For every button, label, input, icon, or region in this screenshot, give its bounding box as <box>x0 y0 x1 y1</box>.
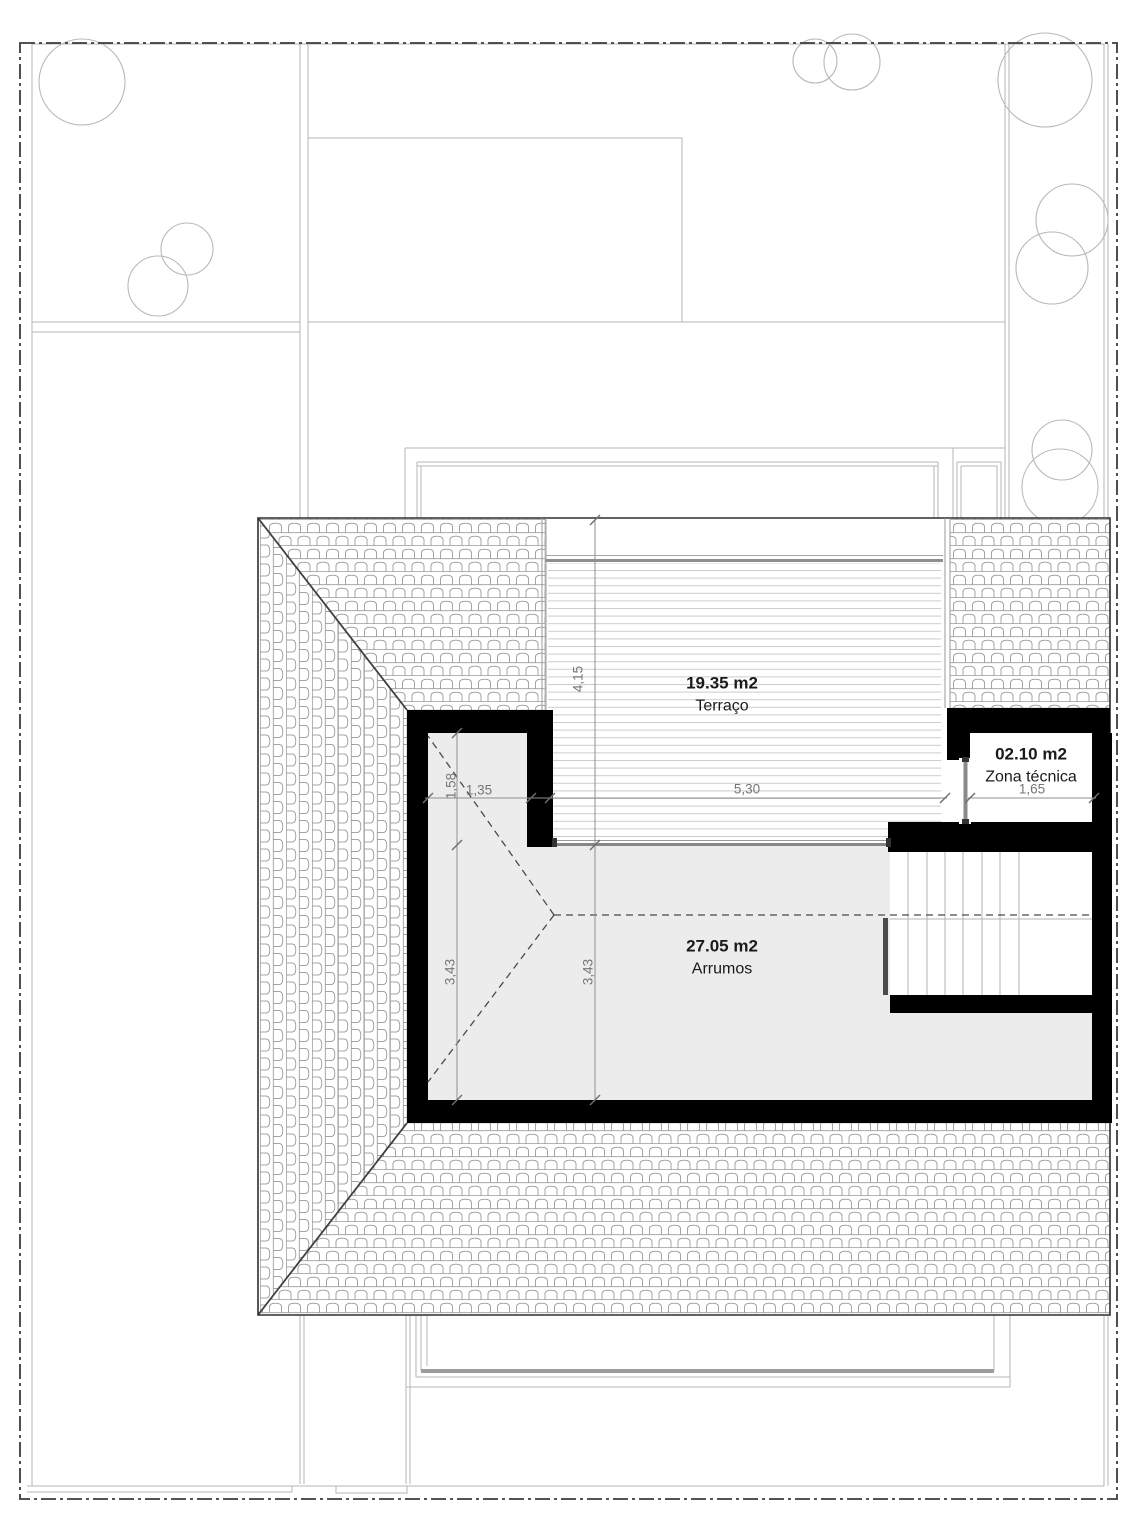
stairs <box>883 852 1092 995</box>
tree <box>1016 232 1088 304</box>
dim-label-terrace-width: 5,30 <box>734 782 760 797</box>
tree <box>128 256 188 316</box>
floor-plan-drawing <box>0 0 1125 1526</box>
room-label-arrumos: 27.05 m2 Arrumos <box>686 936 758 981</box>
floor-plan-canvas: 19.35 m2 Terraço 02.10 m2 Zona técnica 2… <box>0 0 1125 1526</box>
room-area: 19.35 m2 <box>686 673 758 696</box>
room-label-terraco: 19.35 m2 Terraço <box>686 673 758 718</box>
room-area: 27.05 m2 <box>686 936 758 959</box>
tree <box>1032 420 1092 480</box>
roof-hatch-bottom <box>258 1123 1110 1315</box>
technical-zone-door <box>959 757 971 824</box>
dim-label-storage-height-mid: 3,43 <box>581 959 596 985</box>
room-area: 02.10 m2 <box>985 744 1077 767</box>
room-name: Arrumos <box>686 959 758 981</box>
tree <box>39 39 125 125</box>
dim-label-notch-width: 1,35 <box>466 783 492 798</box>
dim-label-terrace-depth: 4,15 <box>571 666 586 692</box>
room-name: Terraço <box>686 696 758 718</box>
dim-label-storage-height-left: 3,43 <box>443 959 458 985</box>
stair-door-jamb <box>883 918 888 995</box>
dim-label-technical-zone-width: 1,65 <box>1019 782 1045 797</box>
dim-label-notch-height: 1,58 <box>444 773 459 799</box>
roof-hatch-right <box>950 518 1110 708</box>
tree <box>793 39 837 83</box>
tree-circles <box>39 33 1108 525</box>
tree <box>1036 184 1108 256</box>
tree <box>1022 449 1098 525</box>
tree <box>998 33 1092 127</box>
tree <box>161 223 213 275</box>
